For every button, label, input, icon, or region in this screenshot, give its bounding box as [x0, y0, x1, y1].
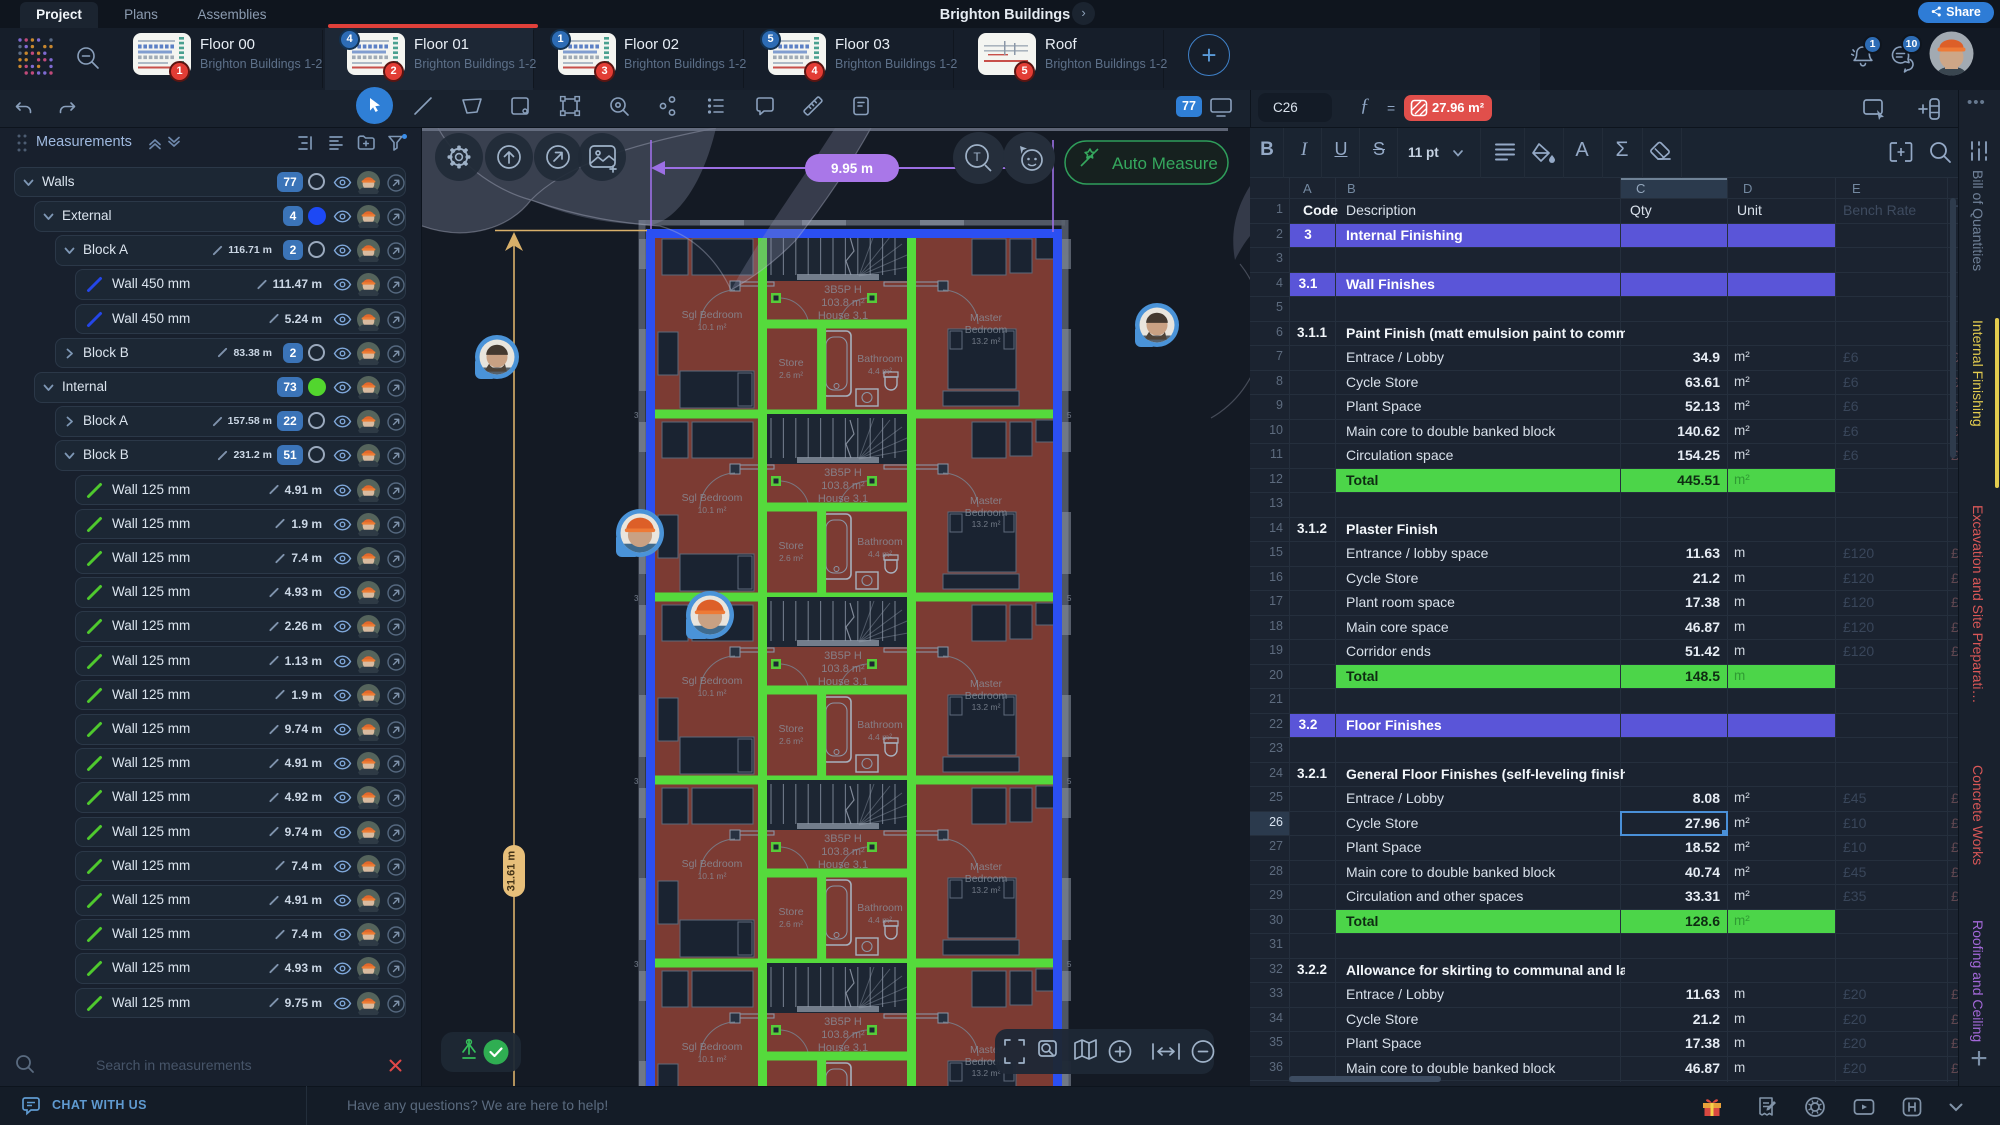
svg-text:3: 3	[634, 411, 639, 420]
svg-text:9.95 m: 9.95 m	[831, 161, 873, 176]
svg-text:3: 3	[634, 777, 639, 786]
svg-text:31.61 m: 31.61 m	[506, 851, 518, 892]
svg-text:5: 5	[1067, 594, 1072, 603]
svg-text:5: 5	[1067, 960, 1072, 969]
svg-text:5: 5	[1067, 411, 1072, 420]
svg-text:5: 5	[1067, 777, 1072, 786]
svg-text:3: 3	[634, 594, 639, 603]
svg-text:3: 3	[634, 960, 639, 969]
svg-text:T: T	[973, 150, 981, 164]
svg-text:Auto Measure: Auto Measure	[1112, 154, 1218, 173]
